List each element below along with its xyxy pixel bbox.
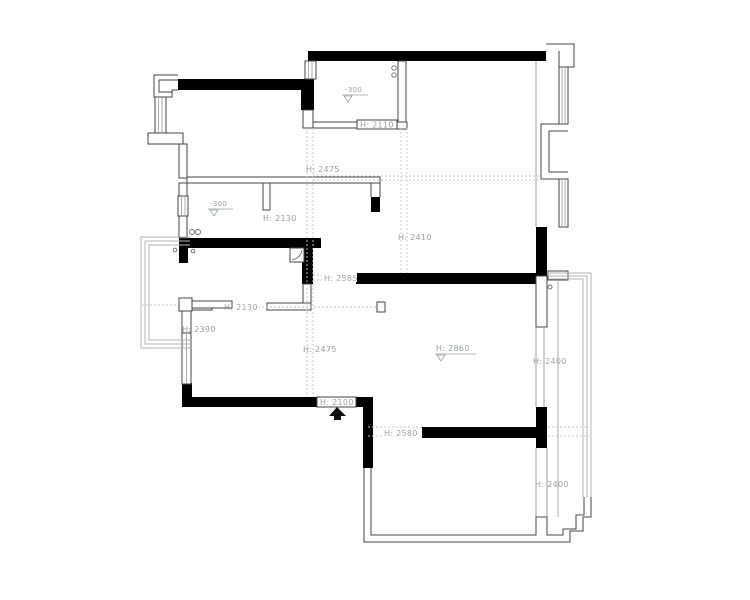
hinge-dot-storage-1 bbox=[190, 230, 195, 235]
wall-left-b bbox=[179, 183, 187, 196]
wall-top-left-room bbox=[178, 79, 311, 90]
level-bathroom-text: -300 bbox=[345, 86, 362, 94]
label-h2410: H: 2410 bbox=[398, 233, 432, 242]
window-bathroom bbox=[305, 61, 316, 79]
label-h2110: H: 2110 bbox=[360, 121, 394, 130]
height-marker-living: H: 2860 bbox=[435, 344, 476, 361]
hinge-dot-kitchen-1 bbox=[173, 248, 177, 252]
fixture-dot-bathroom-2 bbox=[392, 73, 396, 77]
label-h2585: H: 2585 bbox=[324, 274, 358, 283]
bottom-wall-inner bbox=[371, 468, 584, 535]
label-h2390: H: 2390 bbox=[182, 325, 216, 334]
wall-entry-left bbox=[182, 397, 318, 407]
wall-entry-corner bbox=[363, 397, 373, 468]
wall-kitchen-bottom-right bbox=[267, 303, 311, 310]
level-marker-storage: -300 bbox=[208, 200, 233, 216]
wall-dining-bottom bbox=[422, 427, 536, 438]
wall-left-a bbox=[179, 144, 187, 178]
level-triangle-icon bbox=[210, 210, 218, 216]
opening-jamb-living bbox=[377, 302, 385, 312]
label-h2475-top: H: 2475 bbox=[306, 165, 340, 174]
wall-right-tee bbox=[536, 407, 547, 448]
hinge-dot-balcony bbox=[548, 285, 552, 289]
corner-step-top-right bbox=[546, 44, 574, 67]
fixture-dot-bathroom-1 bbox=[392, 66, 396, 70]
label-h2475-living: H: 2475 bbox=[303, 345, 337, 354]
right-wall-bay-inner bbox=[549, 131, 568, 172]
corner-step-top-left bbox=[154, 75, 178, 97]
label-h2100: H: 2100 bbox=[320, 398, 354, 407]
level-marker-bathroom: -300 bbox=[342, 86, 368, 102]
wall-bathroom-right bbox=[398, 61, 406, 122]
wall-left-c bbox=[179, 216, 187, 238]
hinge-dot-kitchen-2 bbox=[191, 249, 195, 253]
label-h2580: H: 2580 bbox=[384, 429, 418, 438]
bathroom-door-jamb bbox=[397, 122, 407, 129]
window-bedroom-left bbox=[155, 97, 166, 133]
windows bbox=[155, 61, 568, 384]
wall-kitchen-left-stub bbox=[179, 248, 188, 263]
wall-niche-stub bbox=[371, 197, 380, 212]
level-triangle-icon bbox=[344, 96, 352, 102]
wall-bedroom-bottom bbox=[187, 177, 380, 183]
entrance-arrow-icon bbox=[329, 407, 346, 420]
hinge-dot-storage-2 bbox=[196, 230, 201, 235]
balcony-right-rail-outer bbox=[548, 273, 591, 497]
wall-bathroom-left-lower bbox=[303, 110, 313, 128]
label-h2860: H: 2860 bbox=[436, 344, 470, 353]
door-jamb-balcony bbox=[179, 298, 192, 311]
level-triangle-icon bbox=[437, 355, 445, 361]
balcony-right-rail-inner bbox=[548, 279, 583, 497]
level-storage-text: -300 bbox=[210, 200, 227, 208]
floor-plan-canvas: -300 -300 H: 2860 H: 2110 H: 2100 H: 247… bbox=[0, 0, 750, 600]
wall-storage-divider bbox=[263, 183, 270, 210]
floor-plan-drawing: -300 -300 H: 2860 H: 2110 H: 2100 H: 247… bbox=[0, 0, 750, 600]
balcony-right-rail-mid bbox=[548, 276, 587, 497]
window-right-lower bbox=[559, 179, 568, 227]
wall-bathroom-bottom bbox=[313, 122, 357, 128]
wall-bathroom-left bbox=[301, 79, 314, 110]
label-h2400-upper: H: 2400 bbox=[533, 357, 567, 366]
thick-walls bbox=[178, 51, 547, 468]
label-h2400-lower: H: 2400 bbox=[535, 480, 569, 489]
right-column bbox=[536, 276, 547, 327]
wall-right-upper bbox=[536, 227, 547, 273]
window-storage-left bbox=[178, 196, 188, 216]
wall-step-left bbox=[148, 133, 183, 144]
window-right-upper bbox=[559, 67, 568, 124]
label-h2130-balcony: H: 2130 bbox=[224, 303, 258, 312]
label-h2130-hall: H: 2130 bbox=[263, 214, 297, 223]
wall-top-exterior bbox=[308, 51, 546, 61]
right-wall-bay-outer bbox=[541, 124, 568, 179]
wall-kitchen-top bbox=[179, 238, 321, 248]
wall-living-top bbox=[356, 273, 547, 284]
